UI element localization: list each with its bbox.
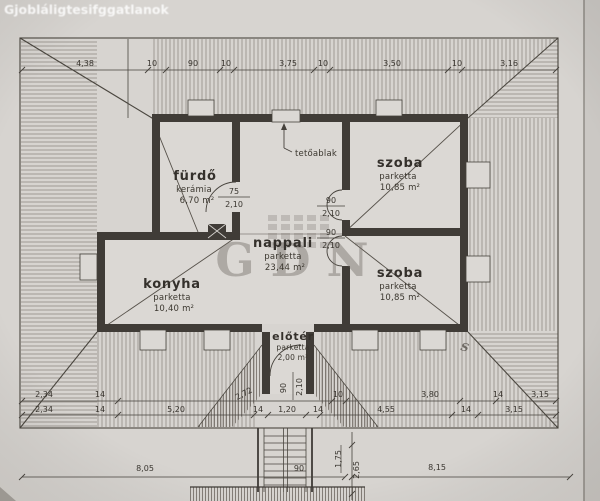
site-watermark-text: Gjobláligtesifggatlanok — [4, 2, 169, 17]
floor-plan-drawing: GDN fürdő kerámia 6,70 m² szoba parketta… — [0, 0, 600, 501]
scan-artifacts — [0, 0, 600, 501]
scanned-floor-plan-page: GDN fürdő kerámia 6,70 m² szoba parketta… — [0, 0, 600, 501]
